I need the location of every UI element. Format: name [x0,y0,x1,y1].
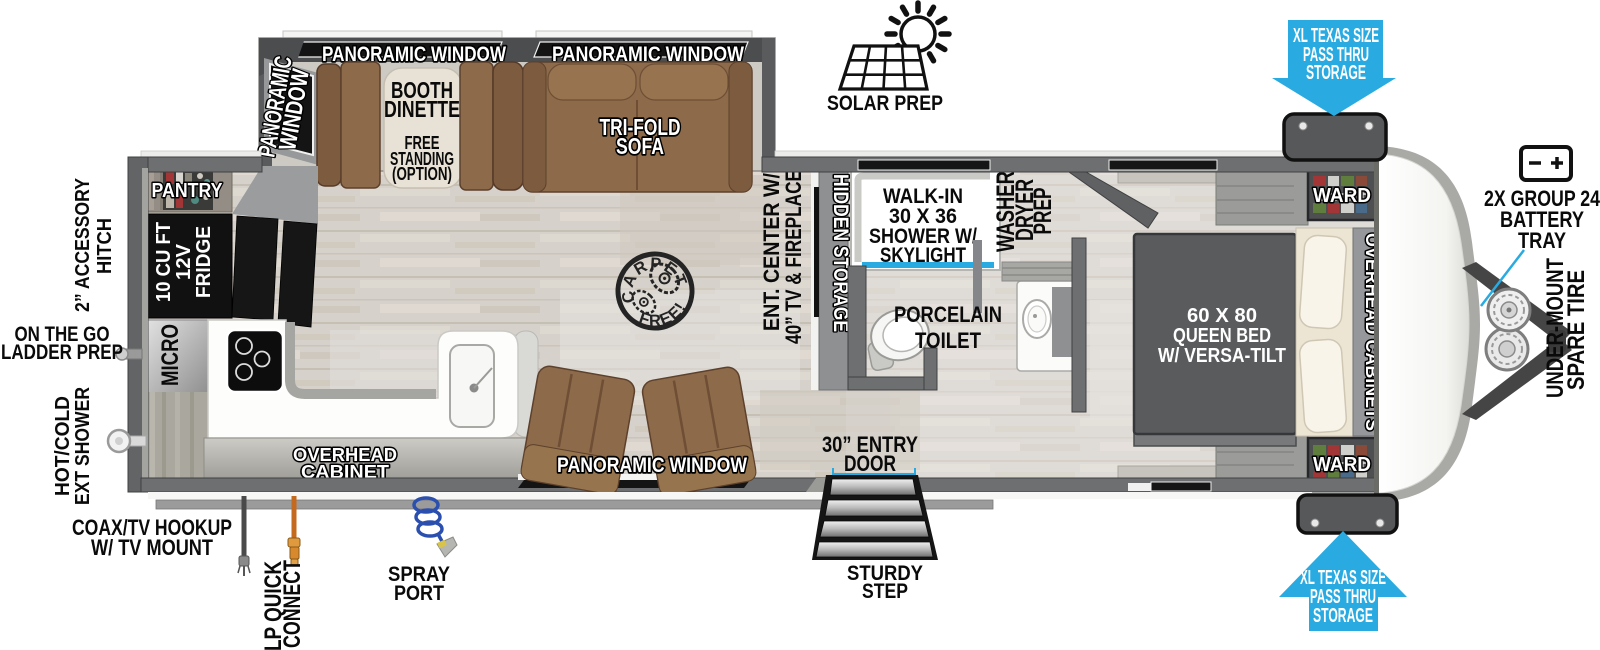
svg-text:STEP: STEP [862,580,908,603]
svg-text:SPARE TIRE: SPARE TIRE [1563,270,1590,390]
svg-text:STORAGE: STORAGE [1313,605,1373,627]
svg-text:2” ACCESSORY: 2” ACCESSORY [72,177,94,312]
svg-text:PORT: PORT [394,582,444,605]
svg-text:MICRO: MICRO [157,324,184,386]
svg-text:CONNECT: CONNECT [279,560,306,648]
svg-text:QUEEN BED: QUEEN BED [1173,325,1271,347]
svg-text:SOLAR PREP: SOLAR PREP [827,92,943,115]
svg-text:PANORAMIC WINDOW: PANORAMIC WINDOW [557,454,747,477]
svg-text:TRAY: TRAY [1518,228,1566,253]
svg-text:W/ VERSA-TILT: W/ VERSA-TILT [1158,345,1286,367]
svg-text:STORAGE: STORAGE [1306,62,1366,84]
svg-text:40” TV & FIREPLACE: 40” TV & FIREPLACE [781,170,806,344]
svg-text:SOFA: SOFA [616,133,664,159]
svg-text:PORCELAIN: PORCELAIN [894,302,1002,327]
svg-text:WARD: WARD [1313,185,1371,207]
svg-text:W/ TV MOUNT: W/ TV MOUNT [91,535,213,560]
svg-text:LADDER PREP: LADDER PREP [1,341,123,364]
svg-text:DINETTE: DINETTE [384,96,460,122]
svg-text:WARD: WARD [1313,454,1371,476]
svg-text:60 X 80: 60 X 80 [1187,305,1257,327]
svg-text:10 CU FT: 10 CU FT [153,222,175,302]
svg-text:FRIDGE: FRIDGE [193,226,215,298]
svg-text:HITCH: HITCH [94,218,116,274]
svg-text:12V: 12V [173,243,195,280]
svg-text:SKYLIGHT: SKYLIGHT [880,244,966,267]
svg-text:HOT/COLD: HOT/COLD [52,396,74,496]
svg-text:EXT SHOWER: EXT SHOWER [72,387,94,505]
svg-text:TOILET: TOILET [915,328,981,353]
svg-text:(OPTION): (OPTION) [392,164,452,184]
svg-text:PREP: PREP [1029,188,1057,235]
svg-text:DOOR: DOOR [844,451,896,476]
svg-text:PANTRY: PANTRY [152,180,224,202]
